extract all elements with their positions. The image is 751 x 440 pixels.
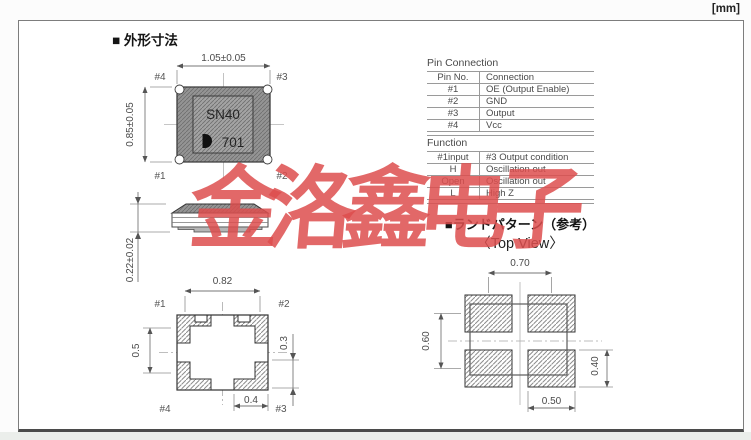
cell-input: H	[427, 164, 480, 176]
pin-label-1: #1	[154, 171, 166, 182]
dim-span-label: 0.82	[213, 276, 233, 287]
dim-width-label: 1.05±0.05	[201, 53, 246, 64]
unit-label: [mm]	[688, 3, 740, 15]
cell-input: L	[427, 188, 480, 200]
land-pad	[465, 295, 512, 332]
marking-line2: 701	[222, 135, 245, 150]
dim-pad-label: 0.4	[244, 395, 258, 406]
outline-dimensions-title: ■ 外形寸法	[112, 29, 178, 49]
cell-output: Oscillation out	[480, 164, 595, 176]
pin-label-1: #1	[154, 299, 166, 310]
function-table: #1input #3 Output condition H Oscillatio…	[427, 151, 594, 200]
pin-connection-section: Pin Connection Pin No. Connection #1 OE …	[427, 57, 594, 136]
dim-pad-h-label: 0.40	[590, 356, 601, 376]
dim-pad-w-label: 0.50	[542, 396, 562, 407]
land-pad	[528, 350, 575, 387]
land-pattern-title: ■ランドパターン（参考）	[418, 214, 622, 233]
table-header-row: #1input #3 Output condition	[427, 152, 594, 164]
pin-label-3: #3	[276, 72, 288, 83]
table-row: H Oscillation out	[427, 164, 594, 176]
table-row: #2 GND	[427, 96, 594, 108]
pin-label-4: #4	[159, 404, 171, 415]
cell-output: Oscillation out	[480, 176, 595, 188]
table-bottom-rule	[427, 134, 594, 136]
pin-label-2: #2	[278, 299, 290, 310]
pin-connection-title: Pin Connection	[427, 57, 594, 69]
cell-pin: #2	[427, 96, 480, 108]
dim-pitch-x-label: 0.70	[510, 258, 530, 269]
header-pin-no: Pin No.	[427, 72, 480, 84]
land-pad	[528, 295, 575, 332]
table-row: #4 Vcc	[427, 120, 594, 132]
cell-pin: #3	[427, 108, 480, 120]
table-row: #3 Output	[427, 108, 594, 120]
function-section: Function #1input #3 Output condition H O…	[427, 137, 594, 204]
function-title: Function	[427, 137, 594, 149]
dimension-lines	[434, 273, 613, 412]
table-header-row: Pin No. Connection	[427, 72, 594, 84]
pin-label-3: #3	[275, 404, 287, 415]
table-row: L High Z	[427, 188, 594, 200]
side-profile	[172, 204, 268, 232]
table-bottom-rule	[427, 202, 594, 204]
cell-connection: Output	[480, 108, 595, 120]
cell-pin: #1	[427, 84, 480, 96]
cell-connection: Vcc	[480, 120, 595, 132]
marking-line1: SN40	[206, 107, 240, 122]
corner-castellation	[175, 85, 184, 94]
cell-connection: GND	[480, 96, 595, 108]
dim-pitch-y-label: 0.60	[421, 331, 432, 351]
cell-output: High Z	[480, 188, 595, 200]
package-body: SN40 701	[175, 85, 272, 164]
package-bottom-view-drawing: 0.82 0.5 0.3 0.4 #1 #2 #4 #3	[103, 272, 333, 430]
land-pattern-drawing: 0.70 0.60 0.40 0.50	[412, 252, 637, 424]
top-view-label: 〈Top View〉	[418, 232, 622, 253]
page-bottom-strip	[0, 432, 751, 440]
dimension-lines	[130, 192, 170, 282]
corner-castellation	[263, 85, 272, 94]
pin-label-4: #4	[154, 72, 166, 83]
table-row: Open Oscillation out	[427, 176, 594, 188]
table-row: #1 OE (Output Enable)	[427, 84, 594, 96]
dim-left-label: 0.5	[131, 343, 142, 357]
datasheet-page: [mm] ■ 外形寸法 SN40 701	[0, 0, 751, 440]
dim-right-label: 0.3	[279, 336, 290, 350]
dim-height-label: 0.85±0.05	[125, 102, 136, 147]
package-top-view-drawing: SN40 701 1.05±0.05 0.85±0.05 #4 #3 #1 #2	[106, 48, 336, 188]
header-input: #1input	[427, 152, 480, 164]
corner-castellation	[175, 155, 184, 164]
header-connection: Connection	[480, 72, 595, 84]
header-output-condition: #3 Output condition	[480, 152, 595, 164]
land-pad	[465, 350, 512, 387]
cell-input: Open	[427, 176, 480, 188]
cell-pin: #4	[427, 120, 480, 132]
cell-connection: OE (Output Enable)	[480, 84, 595, 96]
pin-label-2: #2	[276, 171, 288, 182]
pin-connection-table: Pin No. Connection #1 OE (Output Enable)…	[427, 71, 594, 132]
corner-castellation	[263, 155, 272, 164]
